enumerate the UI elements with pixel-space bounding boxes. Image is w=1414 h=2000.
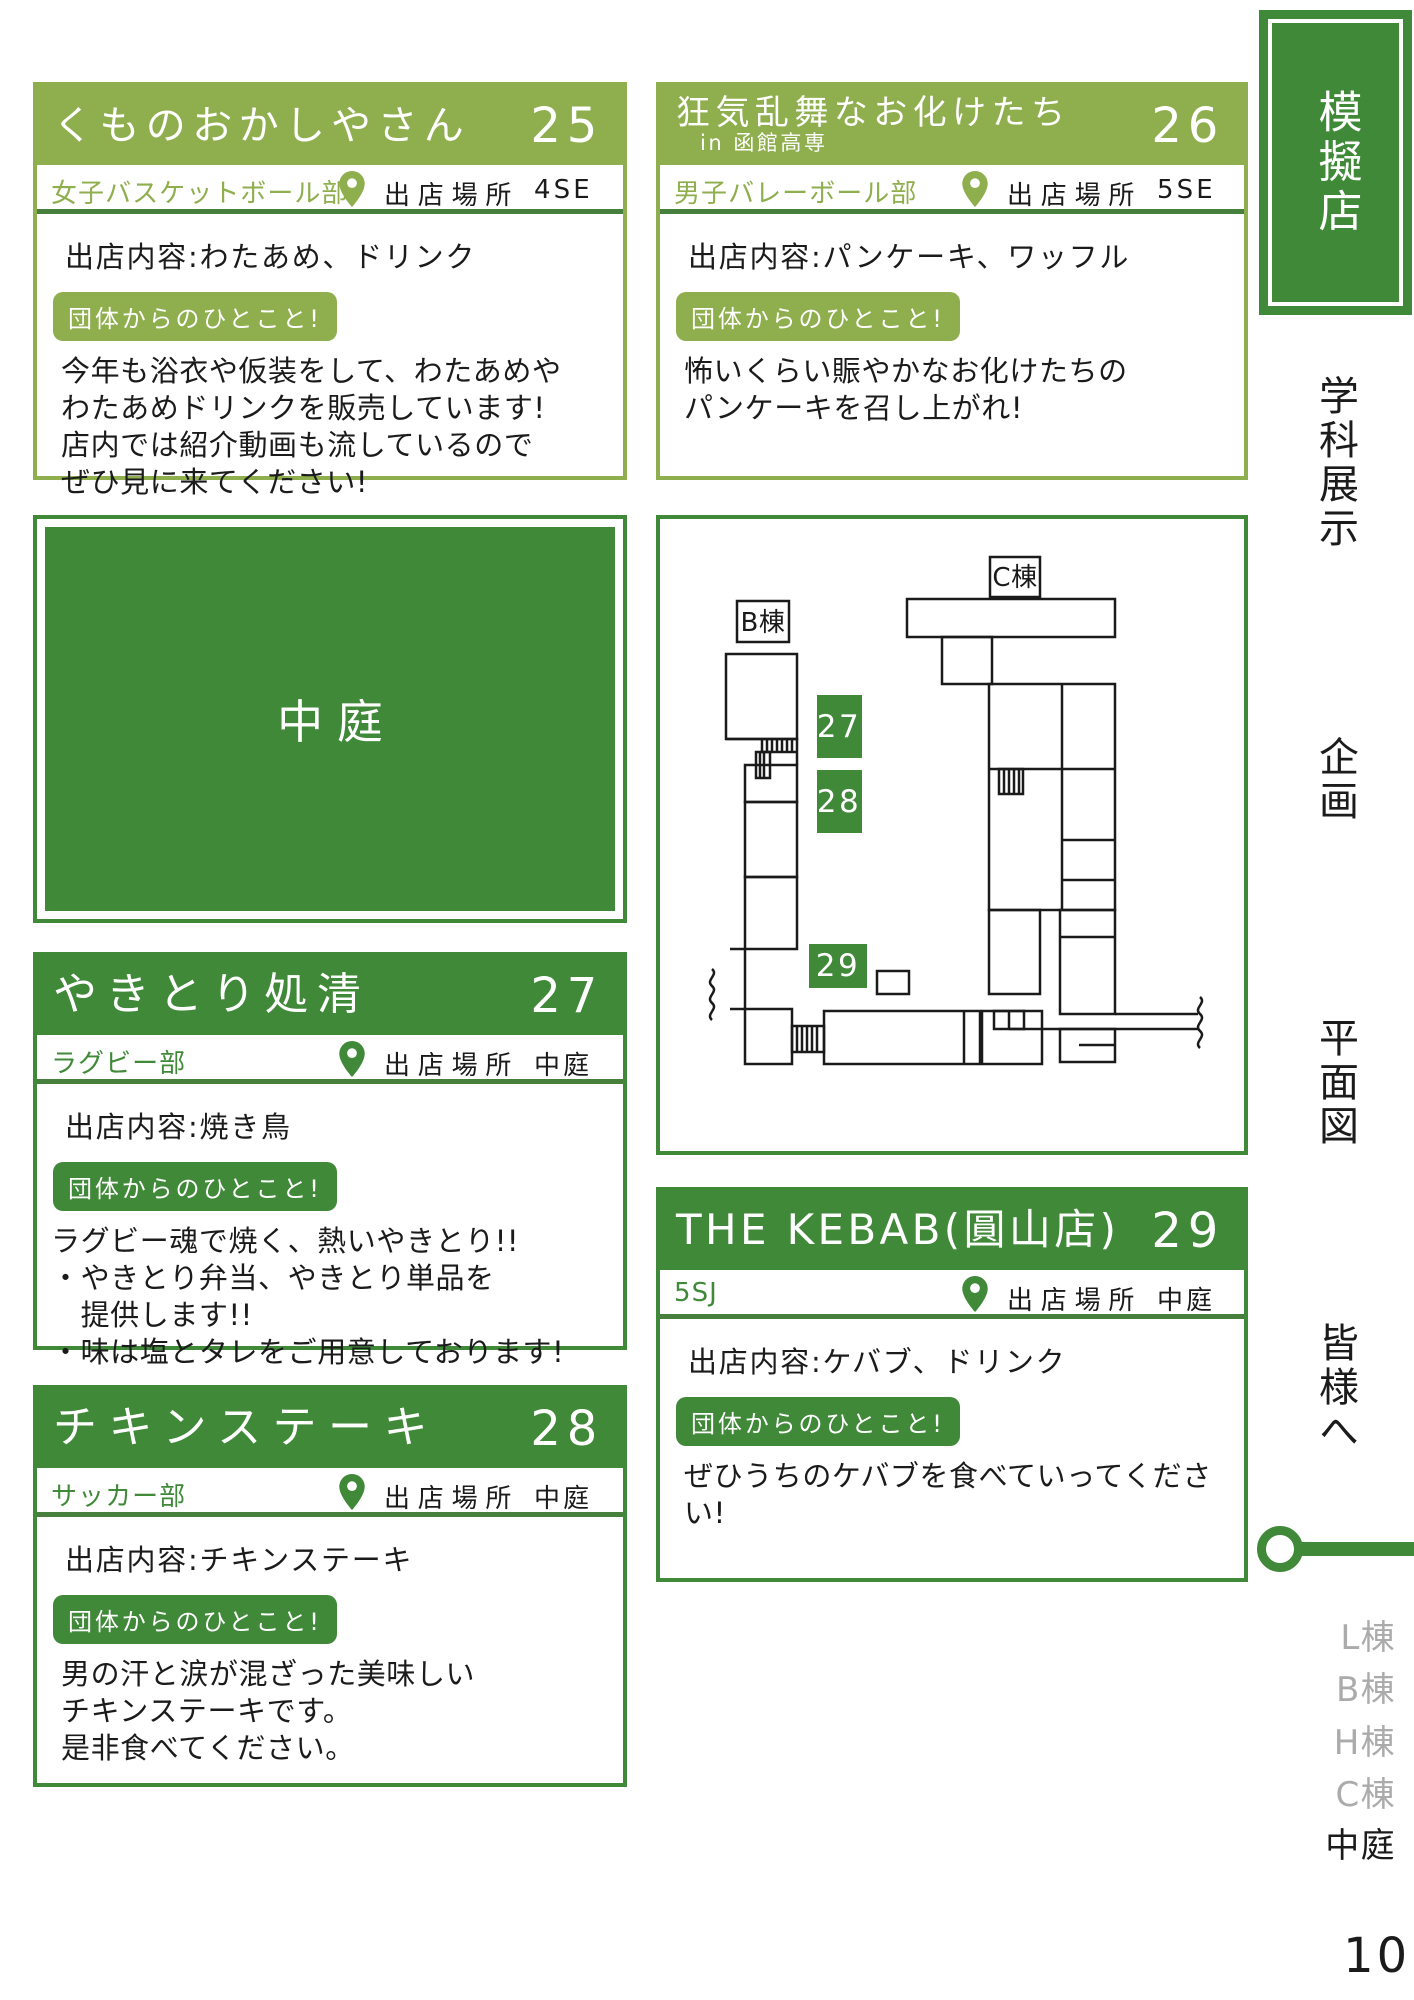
- location-value: 中庭: [534, 1045, 592, 1082]
- location-label: 出店場所: [1007, 1280, 1142, 1317]
- club-name: サッカー部: [51, 1476, 186, 1513]
- stall-card-26-header: 狂気乱舞なお化けたち in 函館高専 26: [660, 86, 1244, 165]
- stall-comments: 男の汗と涙が混ざった美味しい チキンステーキです。 是非食べてください。: [61, 1656, 599, 1767]
- building-list-item-b: B棟: [1276, 1662, 1396, 1711]
- courtyard-label: 中庭: [263, 686, 396, 752]
- map-pin-icon: [339, 1041, 365, 1081]
- courtyard-box: 中庭: [33, 515, 627, 923]
- section-marker-line: [1296, 1542, 1414, 1556]
- stall-number: 26: [1151, 98, 1224, 154]
- stall-card-26: 狂気乱舞なお化けたち in 函館高専 26 男子バレーボール部 出店場所 5SE…: [656, 82, 1248, 480]
- stall-content: 出店内容:焼き鳥: [65, 1104, 623, 1146]
- courtyard-fill: 中庭: [45, 527, 615, 911]
- map-marker-29-label: 29: [816, 948, 860, 984]
- sidebar-tab-heimenzu: 平面図: [1316, 1010, 1364, 1155]
- map-pin-icon: [339, 171, 365, 211]
- stall-card-29-body: 出店内容:ケバブ、ドリンク 団体からのひとこと! ぜひうちのケバブを食べていって…: [660, 1339, 1244, 1532]
- floor-plan-map: B棟 C棟: [656, 515, 1248, 1155]
- stall-comments: 怖いくらい賑やかなお化けたちの パンケーキを召し上がれ!: [684, 353, 1220, 427]
- page-number: 10: [1343, 1928, 1410, 1984]
- comment-line: 提供します!!: [51, 1297, 599, 1334]
- comment-line: チキンステーキです。: [61, 1693, 599, 1730]
- sidebar-tab-mogiten-label: 模擬店: [1304, 89, 1368, 237]
- club-name: 女子バスケットボール部: [51, 173, 348, 210]
- map-marker-28: 28: [817, 770, 862, 833]
- stall-number: 28: [530, 1401, 603, 1457]
- club-name: ラグビー部: [51, 1043, 186, 1080]
- building-list-item-c: C棟: [1276, 1767, 1396, 1816]
- stall-comments: 今年も浴衣や仮装をして、わたあめや わたあめドリンクを販売しています! 店内では…: [61, 353, 599, 501]
- stall-card-25-header: くものおかしやさん 25: [37, 86, 623, 165]
- stall-card-26-subheader: 男子バレーボール部 出店場所 5SE: [660, 165, 1244, 214]
- stall-card-28-subheader: サッカー部 出店場所 中庭: [37, 1468, 623, 1517]
- location-value: 5SE: [1157, 175, 1216, 205]
- stall-number: 29: [1151, 1203, 1224, 1259]
- building-list-item-h: H棟: [1276, 1715, 1396, 1764]
- comment-line: 是非食べてください。: [61, 1730, 599, 1767]
- map-pin-icon: [962, 171, 988, 211]
- location-label: 出店場所: [1007, 175, 1142, 212]
- comment-badge: 団体からのひとこと!: [53, 1162, 337, 1211]
- stall-comments: ぜひうちのケバブを食べていってください!: [684, 1458, 1220, 1532]
- stall-number: 27: [530, 968, 603, 1024]
- map-marker-27: 27: [817, 695, 862, 758]
- wall-break-squiggle-right: [1198, 997, 1202, 1048]
- stall-number: 25: [530, 98, 603, 154]
- comment-badge: 団体からのひとこと!: [676, 1397, 960, 1446]
- stall-card-28: チキンステーキ 28 サッカー部 出店場所 中庭 出店内容:チキンステーキ 団体…: [33, 1385, 627, 1787]
- stall-card-27-header: やきとり処清 27: [37, 956, 623, 1035]
- map-pin-icon: [339, 1474, 365, 1514]
- comment-line: 男の汗と涙が混ざった美味しい: [61, 1656, 599, 1693]
- comment-badge: 団体からのひとこと!: [53, 1595, 337, 1644]
- floor-plan-svg: B棟 C棟: [660, 519, 1244, 1151]
- location-value: 中庭: [534, 1478, 592, 1515]
- stall-card-29-subheader: 5SJ 出店場所 中庭: [660, 1270, 1244, 1319]
- stall-card-25-subheader: 女子バスケットボール部 出店場所 4SE: [37, 165, 623, 214]
- comment-line: 怖いくらい賑やかなお化けたちの: [684, 353, 1220, 390]
- stall-card-29-header: THE KEBAB(圓山店) 29: [660, 1191, 1244, 1270]
- sidebar-tab-mogiten-current: 模擬店: [1259, 10, 1412, 315]
- map-pin-icon: [962, 1276, 988, 1316]
- location-value: 4SE: [534, 175, 593, 205]
- comment-line: パンケーキを召し上がれ!: [684, 390, 1220, 427]
- building-list-item-nakaniwa-active: 中庭: [1276, 1818, 1396, 1867]
- comment-line: ぜひ見に来てください!: [61, 464, 599, 501]
- sidebar-tab-mogiten-inner-frame: 模擬店: [1268, 19, 1403, 306]
- comment-line: 今年も浴衣や仮装をして、わたあめや: [61, 353, 599, 390]
- comment-line: 店内では紹介動画も流しているので: [61, 427, 599, 464]
- stall-content: 出店内容:チキンステーキ: [65, 1537, 623, 1579]
- comment-line: ・やきとり弁当、やきとり単品を: [51, 1260, 599, 1297]
- location-label: 出店場所: [384, 175, 519, 212]
- comment-line: ・味は塩とタレをご用意しております!: [51, 1334, 599, 1371]
- building-list-item-l: L棟: [1276, 1610, 1396, 1659]
- stall-content: 出店内容:パンケーキ、ワッフル: [688, 234, 1244, 276]
- stall-comments: ラグビー魂で焼く、熱いやきとり!! ・やきとり弁当、やきとり単品を 提供します!…: [51, 1223, 599, 1371]
- stall-content: 出店内容:ケバブ、ドリンク: [688, 1339, 1244, 1381]
- stall-card-29: THE KEBAB(圓山店) 29 5SJ 出店場所 中庭 出店内容:ケバブ、ド…: [656, 1187, 1248, 1582]
- map-marker-28-label: 28: [817, 784, 861, 820]
- comment-badge: 団体からのひとこと!: [53, 292, 337, 341]
- comment-line: ラグビー魂で焼く、熱いやきとり!!: [51, 1223, 599, 1260]
- stall-card-27-body: 出店内容:焼き鳥 団体からのひとこと! ラグビー魂で焼く、熱いやきとり!! ・や…: [37, 1104, 623, 1371]
- comment-line: わたあめドリンクを販売しています!: [61, 390, 599, 427]
- club-name: 5SJ: [674, 1278, 718, 1308]
- map-marker-29: 29: [809, 944, 867, 988]
- comment-badge: 団体からのひとこと!: [676, 292, 960, 341]
- stall-card-26-body: 出店内容:パンケーキ、ワッフル 団体からのひとこと! 怖いくらい賑やかなお化けた…: [660, 234, 1244, 427]
- building-b-label: B棟: [741, 608, 786, 638]
- stall-content: 出店内容:わたあめ、ドリンク: [65, 234, 623, 276]
- building-c-label: C棟: [992, 563, 1037, 593]
- building-c-outline: [907, 599, 1202, 1064]
- location-label: 出店場所: [384, 1478, 519, 1515]
- location-value: 中庭: [1157, 1280, 1215, 1317]
- sidebar-tab-kikaku: 企画: [1316, 730, 1364, 830]
- stall-card-25-body: 出店内容:わたあめ、ドリンク 団体からのひとこと! 今年も浴衣や仮装をして、わた…: [37, 234, 623, 501]
- stall-card-27: やきとり処清 27 ラグビー部 出店場所 中庭 出店内容:焼き鳥 団体からのひと…: [33, 952, 627, 1350]
- location-label: 出店場所: [384, 1045, 519, 1082]
- stall-card-28-body: 出店内容:チキンステーキ 団体からのひとこと! 男の汗と涙が混ざった美味しい チ…: [37, 1537, 623, 1767]
- map-marker-27-label: 27: [817, 709, 861, 745]
- stall-card-25: くものおかしやさん 25 女子バスケットボール部 出店場所 4SE 出店内容:わ…: [33, 82, 627, 480]
- stall-card-28-header: チキンステーキ 28: [37, 1389, 623, 1468]
- club-name: 男子バレーボール部: [674, 173, 917, 210]
- comment-line: ぜひうちのケバブを食べていってください!: [684, 1458, 1220, 1532]
- wall-break-squiggle-left: [710, 969, 714, 1020]
- sidebar-tab-minasamae: 皆様へ: [1316, 1320, 1364, 1455]
- stall-card-27-subheader: ラグビー部 出店場所 中庭: [37, 1035, 623, 1084]
- sidebar-tab-gakkatenji: 学科展示: [1316, 373, 1364, 553]
